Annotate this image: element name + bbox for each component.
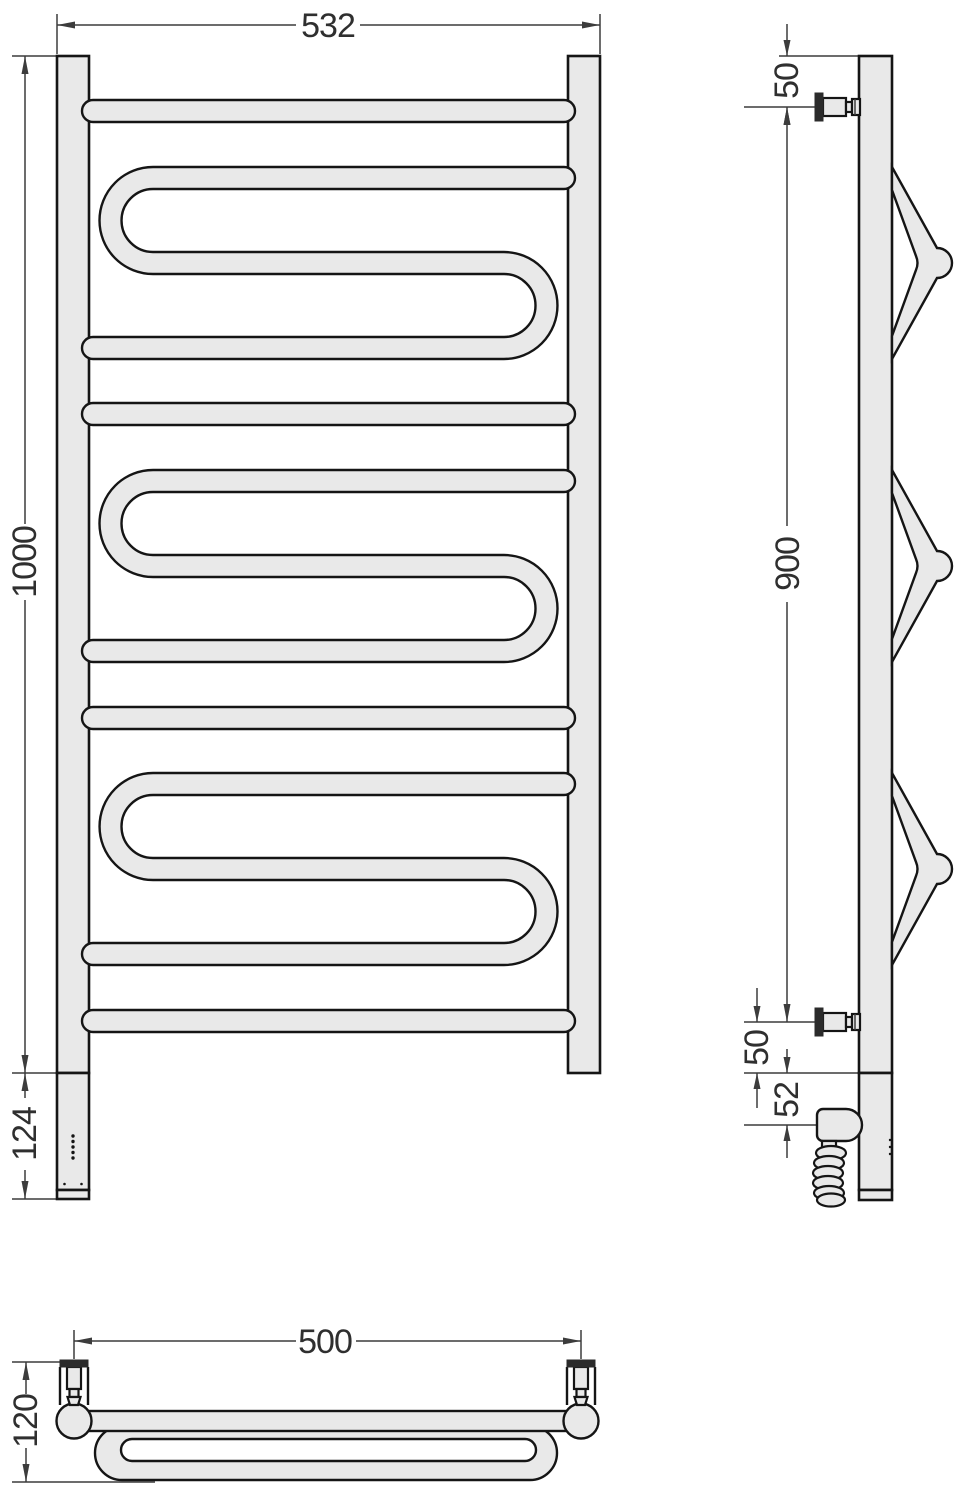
dim-label-side-top-offset: 50 [768,63,806,99]
bottom-collector-bar [74,1411,581,1431]
coil-projection [892,167,952,359]
dimension-bottom-span: 500 [74,1323,581,1361]
towel-rail-technical-drawing: 532 1000 124 [0,0,955,1500]
coil-projection [892,470,952,662]
serpentine-coil [82,470,575,662]
wall-flange [567,1360,595,1367]
side-rail [859,56,892,1073]
wall-flange [60,1360,88,1367]
dimension-side-span: 900 [769,107,807,1022]
rung [82,707,575,729]
dimension-front-height: 1000 [6,56,57,1073]
dim-label-front-width: 532 [301,7,355,45]
dim-label-heater-axis-offset: 52 [768,1082,806,1118]
front-left-rail [57,56,89,1073]
side-wall-bracket-bottom [815,1008,860,1036]
side-heater-housing [859,1073,892,1190]
rail-cross-section-left [57,1404,92,1439]
wall-flange [815,93,823,121]
dim-label-depth: 120 [7,1394,45,1448]
dim-label-side-span: 900 [769,537,807,591]
front-heater-end-cap [57,1190,89,1199]
side-coil-projections [892,167,952,965]
rail-cross-section-right [564,1404,599,1439]
front-serpentine-coils [82,167,575,965]
side-end-cap [859,1190,892,1200]
bottom-wall-bracket-left [60,1360,88,1405]
rung [82,100,575,122]
dimension-heater-section: 124 [6,1073,57,1199]
wall-flange [815,1008,823,1036]
front-view: 532 1000 124 [6,7,600,1199]
dim-label-heater-section: 124 [6,1107,44,1161]
side-view: 50 900 50 52 [738,24,952,1207]
serpentine-coil [82,167,575,359]
dimension-front-width: 532 [57,7,600,54]
coil-projection [892,773,952,965]
spiral-cable [813,1146,846,1207]
bottom-wall-bracket-right [567,1360,595,1405]
dim-label-side-bottom-offset: 50 [738,1030,776,1066]
front-right-rail [568,56,600,1073]
bottom-view: 500 120 [7,1323,599,1482]
dim-label-front-height: 1000 [6,526,44,598]
serpentine-coil [82,773,575,965]
side-wall-bracket-top [815,93,860,121]
drawing-canvas: 532 1000 124 [0,0,955,1500]
bottom-coil-loop [95,1426,557,1480]
front-heater-housing [57,1073,89,1190]
dim-label-bottom-span: 500 [298,1323,352,1361]
rung [82,403,575,425]
rung [82,1010,575,1032]
